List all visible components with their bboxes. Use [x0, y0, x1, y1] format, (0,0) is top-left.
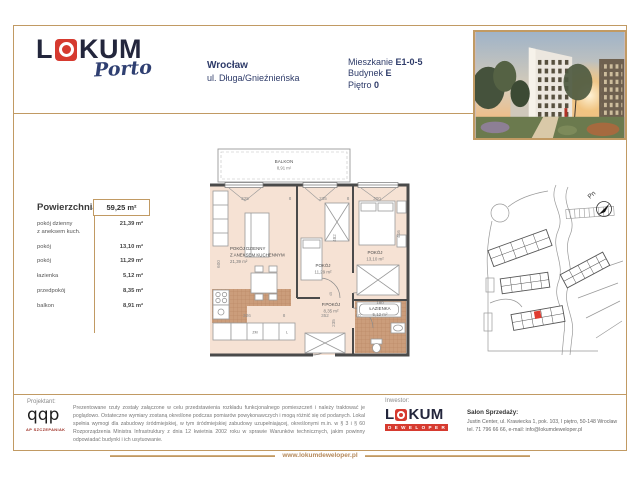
- legal-disclaimer: Prezentowane rzuty zostały załączone w c…: [73, 404, 365, 444]
- compass-north-label: Pn: [587, 190, 598, 201]
- svg-text:21,39 m²: 21,39 m²: [230, 259, 248, 264]
- site-building-d: [511, 306, 565, 331]
- svg-text:300: 300: [373, 196, 381, 201]
- building-letter: E: [386, 68, 392, 78]
- apartment-number: E1-0-5: [396, 57, 423, 67]
- porto-script: Porto: [93, 56, 152, 81]
- svg-text:13,10 m²: 13,10 m²: [366, 257, 384, 262]
- svg-text:180: 180: [376, 300, 384, 305]
- svg-text:POKÓJ: POKÓJ: [368, 250, 383, 255]
- svg-text:235: 235: [331, 319, 336, 327]
- website-row: www.lokumdeweloper.pl: [110, 452, 530, 459]
- deweloper-bar: DEWELOPER: [385, 424, 448, 432]
- unit-info: Mieszkanie E1-0-5 Budynek E Piętro 0: [348, 57, 423, 91]
- svg-text:45: 45: [329, 292, 333, 296]
- svg-text:POKÓJ DZIENNY: POKÓJ DZIENNY: [230, 246, 265, 251]
- building-line: Budynek E: [348, 68, 423, 79]
- svg-text:8,91 m²: 8,91 m²: [277, 166, 292, 171]
- svg-text:326: 326: [243, 313, 251, 318]
- svg-text:5,12 m²: 5,12 m²: [373, 312, 388, 317]
- site-building-a: [488, 229, 552, 266]
- designer-name: AP SZCZEPANIAK: [26, 427, 65, 432]
- sales-office-contact: tel. 71 796 66 66, e-mail: info@lokumdew…: [467, 427, 617, 433]
- street-name: ul. Długa/Gnieźnieńska: [207, 73, 300, 83]
- designer-logo: qqp: [27, 407, 59, 424]
- gold-divider: [110, 455, 275, 457]
- lokum-deweloper-logo: L KUM DEWELOPER: [385, 407, 448, 431]
- city-name: Wrocław: [207, 60, 300, 71]
- site-roads: [484, 185, 623, 355]
- sales-office-block: Salon Sprzedaży: Justin Center, ul. Kraw…: [467, 409, 617, 433]
- sales-office-title: Salon Sprzedaży:: [467, 409, 617, 416]
- table-row: pokój 13,10 m²: [37, 244, 147, 252]
- svg-text:BALKON: BALKON: [275, 159, 294, 164]
- floor-number: 0: [374, 80, 379, 90]
- table-row: pokój 11,29 m²: [37, 258, 147, 266]
- table-row: łazienka 5,12 m²: [37, 273, 147, 281]
- lokum-o-icon: [395, 409, 407, 421]
- apartment-line: Mieszkanie E1-0-5: [348, 57, 423, 68]
- site-building-b: [560, 252, 609, 288]
- development-photo: [473, 30, 627, 140]
- svg-text:235: 235: [319, 196, 327, 201]
- svg-text:Z ANEKSEM KUCHENNYM: Z ANEKSEM KUCHENNYM: [230, 253, 285, 258]
- logo-letter-l: L: [36, 36, 53, 63]
- svg-text:600: 600: [216, 260, 221, 268]
- svg-text:416: 416: [396, 230, 401, 238]
- table-row: przedpokój 8,35 m²: [37, 288, 147, 296]
- table-row: pokój dzienny z aneksem kuch. 21,39 m²: [37, 221, 147, 237]
- area-table-title: Powierzchnia: [37, 202, 98, 213]
- floor-plan: BALKON 8,91 m²: [185, 143, 435, 393]
- total-area-value: 59,25 m²: [93, 199, 150, 216]
- svg-text:P.POKÓJ: P.POKÓJ: [322, 302, 340, 307]
- svg-text:352: 352: [321, 313, 329, 318]
- hallway-furniture: [305, 333, 345, 353]
- site-plan: Pn: [478, 183, 623, 358]
- floor-line: Piętro 0: [348, 80, 423, 91]
- svg-text:10: 10: [355, 313, 361, 318]
- area-table-rows: pokój dzienny z aneksem kuch. 21,39 m² p…: [37, 221, 147, 318]
- svg-text:ŁAZIENKA: ŁAZIENKA: [369, 306, 390, 311]
- site-building-c: [500, 272, 550, 294]
- svg-text:8: 8: [347, 196, 350, 201]
- location-block: Wrocław ul. Długa/Gnieźnieńska: [207, 60, 300, 83]
- lokum-wordmark: L KUM: [385, 407, 448, 422]
- brochure-page: L KUM Porto Wrocław ul. Długa/Gnieźnieńs…: [0, 0, 640, 480]
- balcony: BALKON 8,91 m²: [218, 149, 350, 182]
- svg-text:8: 8: [283, 313, 286, 318]
- sales-office-address: Justin Center, ul. Krawiecka 1, pok. 103…: [467, 419, 617, 425]
- lokum-porto-logo: L KUM Porto: [36, 36, 152, 80]
- svg-text:325: 325: [241, 196, 249, 201]
- svg-text:POKÓJ: POKÓJ: [316, 263, 331, 268]
- svg-text:482: 482: [332, 234, 337, 242]
- gold-divider: [365, 455, 530, 457]
- photo-illustration: [475, 32, 625, 138]
- svg-text:11,29 m²: 11,29 m²: [314, 270, 332, 275]
- investor-label: Inwestor:: [385, 398, 409, 404]
- table-row: balkon 8,91 m²: [37, 303, 147, 311]
- svg-text:ZM: ZM: [252, 331, 257, 335]
- svg-text:8: 8: [289, 196, 292, 201]
- svg-text:L: L: [286, 331, 288, 335]
- lokum-o-icon: [55, 39, 77, 61]
- website-link[interactable]: www.lokumdeweloper.pl: [282, 452, 357, 459]
- highlighted-unit: [534, 310, 542, 319]
